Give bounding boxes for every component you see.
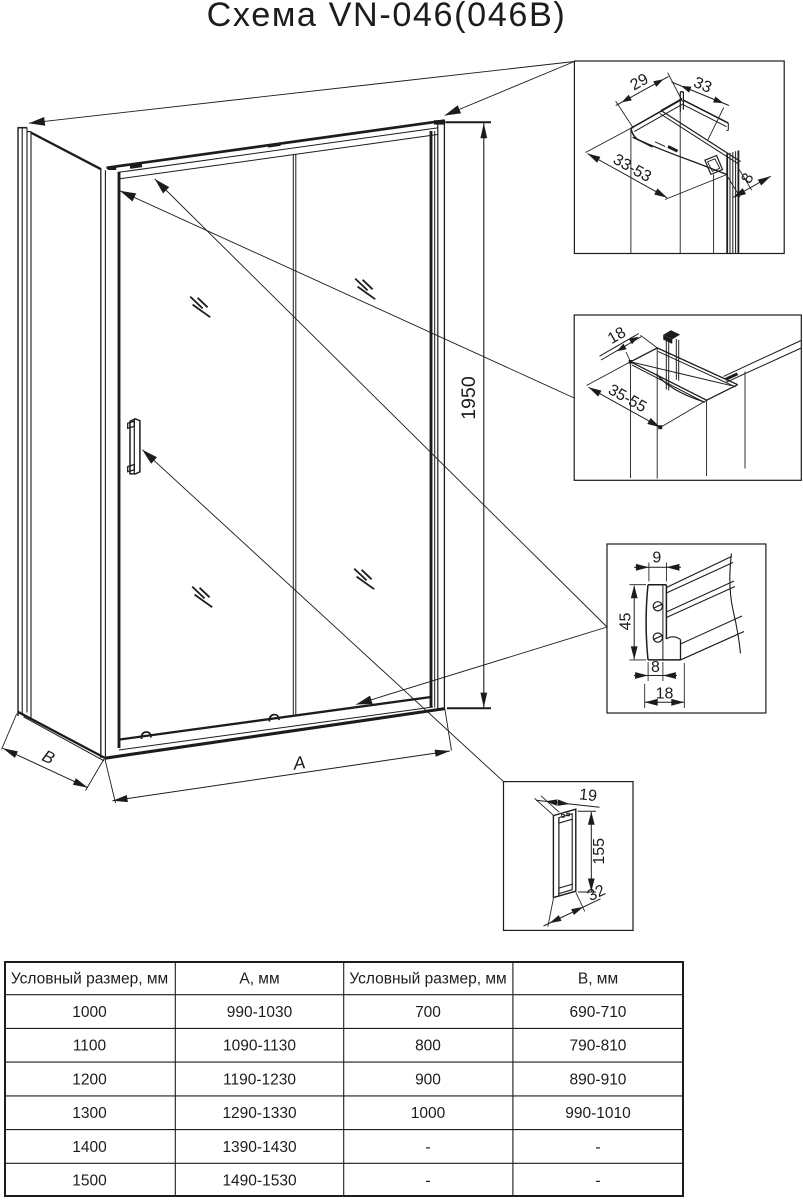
svg-text:9: 9	[652, 550, 661, 567]
svg-text:690-710: 690-710	[570, 1004, 627, 1021]
svg-text:1490-1530: 1490-1530	[222, 1173, 297, 1190]
svg-text:990-1030: 990-1030	[227, 1004, 293, 1021]
svg-text:В, мм: В, мм	[578, 970, 618, 987]
svg-text:790-810: 790-810	[570, 1038, 627, 1055]
svg-text:45: 45	[618, 613, 635, 631]
svg-text:1100: 1100	[73, 1038, 107, 1055]
svg-text:35-55: 35-55	[605, 381, 649, 416]
svg-text:-: -	[595, 1173, 600, 1190]
svg-text:800: 800	[415, 1038, 441, 1055]
svg-text:1290-1330: 1290-1330	[222, 1105, 297, 1122]
svg-text:1190-1230: 1190-1230	[223, 1071, 296, 1088]
svg-text:8: 8	[651, 659, 660, 676]
svg-text:155: 155	[591, 838, 608, 865]
svg-text:B: B	[39, 746, 57, 768]
svg-text:1390-1430: 1390-1430	[222, 1139, 297, 1156]
svg-text:1090-1130: 1090-1130	[223, 1038, 296, 1055]
svg-text:A: A	[291, 752, 307, 774]
svg-text:890-910: 890-910	[570, 1071, 627, 1088]
svg-text:1950: 1950	[458, 376, 480, 420]
svg-text:18: 18	[656, 686, 674, 703]
svg-text:-: -	[595, 1139, 600, 1156]
svg-text:-: -	[425, 1139, 430, 1156]
svg-text:8: 8	[738, 170, 757, 186]
svg-text:32: 32	[585, 882, 608, 905]
svg-text:-: -	[425, 1173, 430, 1190]
svg-text:1000: 1000	[72, 1004, 107, 1021]
svg-text:18: 18	[605, 324, 629, 348]
svg-text:Условный размер, мм: Условный размер, мм	[11, 970, 168, 987]
svg-text:700: 700	[415, 1004, 441, 1021]
svg-text:900: 900	[415, 1071, 441, 1088]
svg-text:А, мм: А, мм	[239, 970, 279, 987]
svg-text:19: 19	[578, 786, 598, 805]
svg-text:1300: 1300	[72, 1105, 107, 1122]
svg-text:29: 29	[628, 71, 652, 95]
svg-text:1000: 1000	[411, 1105, 446, 1122]
svg-text:1500: 1500	[72, 1173, 107, 1190]
svg-text:1200: 1200	[72, 1071, 107, 1088]
svg-text:1400: 1400	[72, 1139, 107, 1156]
svg-text:990-1010: 990-1010	[565, 1105, 631, 1122]
svg-text:33: 33	[691, 74, 714, 97]
svg-text:Схема VN-046(046B): Схема VN-046(046B)	[207, 0, 567, 34]
svg-text:Условный размер, мм: Условный размер, мм	[349, 970, 506, 987]
svg-text:33-53: 33-53	[610, 151, 654, 186]
